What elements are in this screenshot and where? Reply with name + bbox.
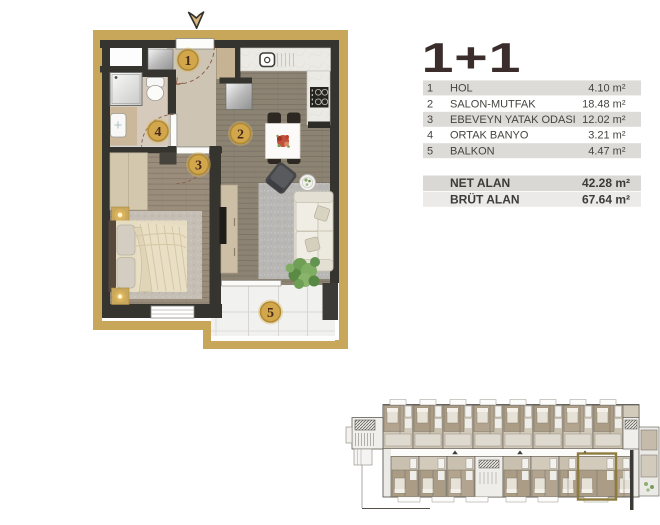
svg-text:5: 5 (427, 145, 433, 157)
svg-text:EBEVEYN YATAK ODASI: EBEVEYN YATAK ODASI (450, 114, 576, 126)
svg-text:1: 1 (185, 54, 192, 69)
svg-text:1+1: 1+1 (422, 34, 522, 82)
svg-text:2: 2 (237, 128, 244, 143)
svg-text:BRÜT ALAN: BRÜT ALAN (450, 191, 520, 206)
svg-text:ORTAK BANYO: ORTAK BANYO (450, 130, 529, 142)
svg-text:4.47 m²: 4.47 m² (588, 145, 626, 157)
svg-text:2: 2 (427, 98, 433, 110)
svg-text:3.21 m²: 3.21 m² (588, 130, 626, 142)
svg-text:NET ALAN: NET ALAN (450, 176, 510, 190)
svg-text:12.02 m²: 12.02 m² (582, 114, 626, 126)
svg-text:42.28 m²: 42.28 m² (582, 176, 630, 190)
svg-text:3: 3 (195, 159, 202, 174)
svg-text:5: 5 (267, 306, 274, 321)
svg-text:HOL: HOL (450, 83, 473, 95)
svg-text:BALKON: BALKON (450, 145, 495, 157)
svg-text:67.64 m²: 67.64 m² (582, 192, 630, 206)
svg-text:1: 1 (427, 83, 433, 95)
svg-text:4: 4 (427, 130, 433, 142)
svg-text:4.10 m²: 4.10 m² (588, 83, 626, 95)
svg-text:SALON-MUTFAK: SALON-MUTFAK (450, 98, 536, 110)
svg-text:3: 3 (427, 114, 433, 126)
svg-text:4: 4 (155, 125, 162, 140)
svg-text:18.48 m²: 18.48 m² (582, 98, 626, 110)
